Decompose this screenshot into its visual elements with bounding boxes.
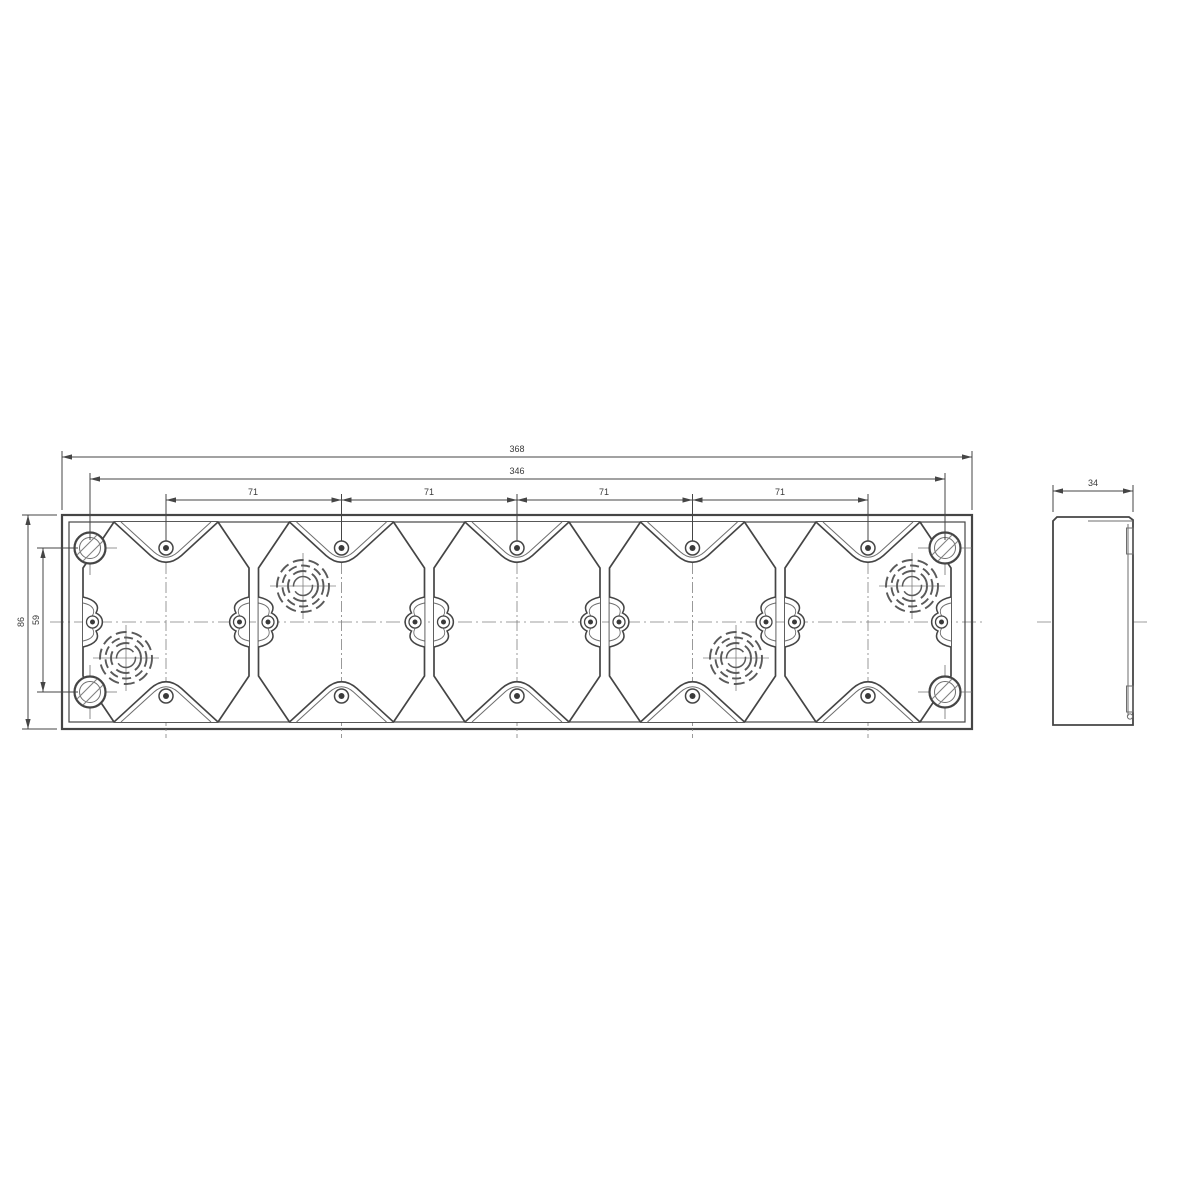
dimension-label-height: 86 <box>16 617 26 627</box>
dimension-label-depth: 34 <box>1088 478 1098 488</box>
drawing-page: 368 346 71 71 71 71 86 59 <box>0 0 1200 1200</box>
dimension-label-total-width: 368 <box>509 444 524 454</box>
dimension-hole-vertical-span <box>37 548 78 692</box>
dimension-module-pitch-lines <box>166 494 868 541</box>
knockout-cell2 <box>270 553 336 619</box>
side-body-outline <box>1053 517 1133 725</box>
knockout-cell5 <box>879 553 945 619</box>
dimension-depth <box>1053 485 1133 512</box>
dimension-label-pitch-2: 71 <box>424 487 434 497</box>
technical-drawing-canvas: 368 346 71 71 71 71 86 59 <box>0 0 1200 1200</box>
dimension-label-pitch-3: 71 <box>599 487 609 497</box>
side-view <box>1037 517 1150 725</box>
dimension-label-pitch-4: 71 <box>775 487 785 497</box>
dimension-label-pitch-1: 71 <box>248 487 258 497</box>
dimension-label-hole-span: 346 <box>509 466 524 476</box>
knockout-cell4 <box>703 625 769 691</box>
knockout-cell1 <box>93 625 159 691</box>
fixing-hole-bottom-right <box>918 665 972 719</box>
dimension-label-hole-vertical-span: 59 <box>31 615 41 625</box>
